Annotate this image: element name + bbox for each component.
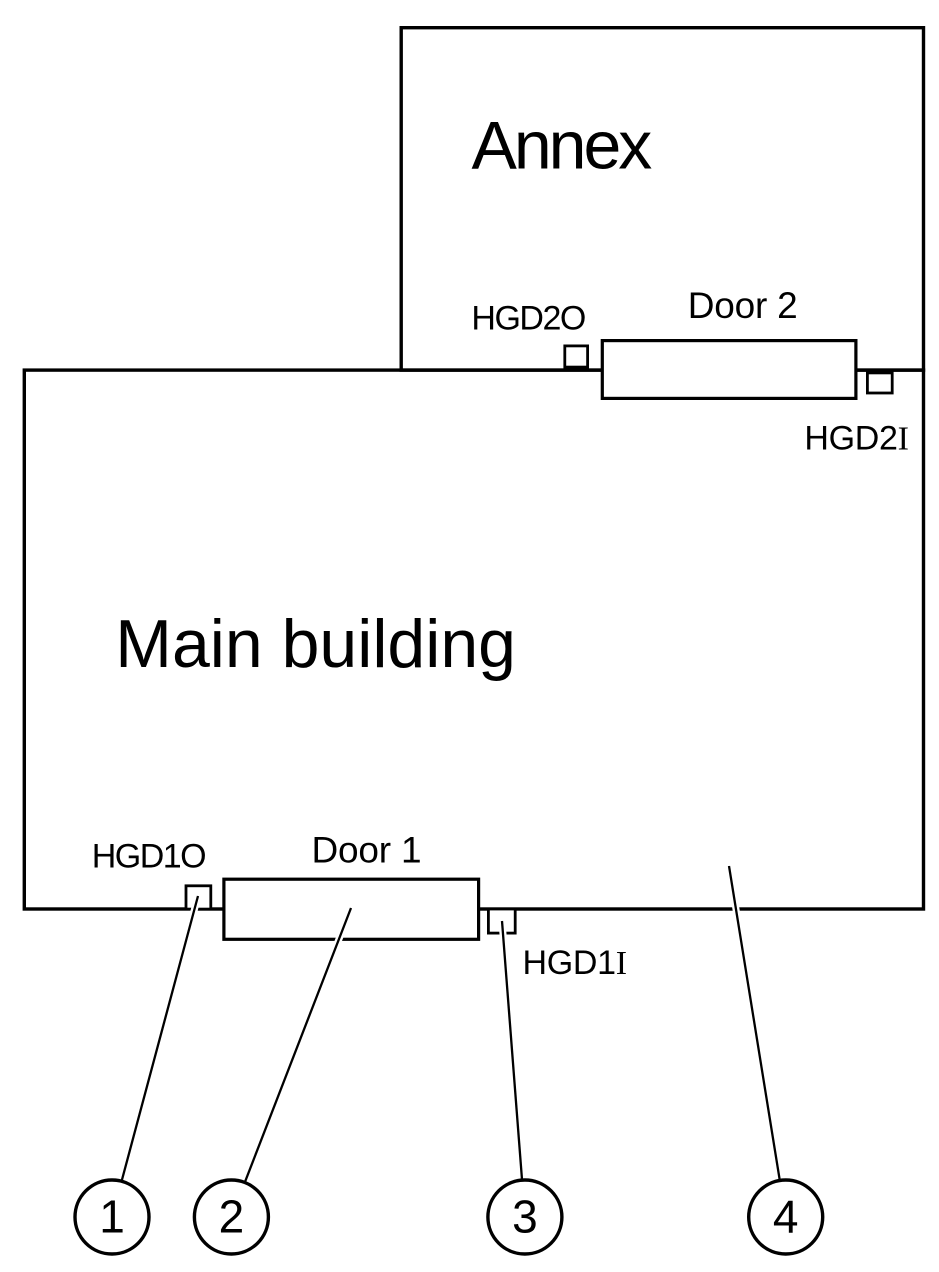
svg-text:1: 1 — [99, 1191, 125, 1243]
svg-text:HGD2O: HGD2O — [471, 299, 584, 337]
svg-text:3: 3 — [512, 1191, 538, 1243]
svg-text:Door 2: Door 2 — [688, 285, 798, 326]
svg-text:4: 4 — [773, 1191, 799, 1243]
svg-text:HGD1O: HGD1O — [92, 838, 205, 876]
svg-text:Main building: Main building — [115, 606, 516, 682]
svg-text:Door 1: Door 1 — [312, 830, 422, 871]
svg-text:Annex: Annex — [472, 108, 653, 184]
svg-text:HGD2I: HGD2I — [804, 419, 908, 457]
svg-text:2: 2 — [219, 1191, 245, 1243]
svg-text:HGD1I: HGD1I — [523, 944, 627, 982]
